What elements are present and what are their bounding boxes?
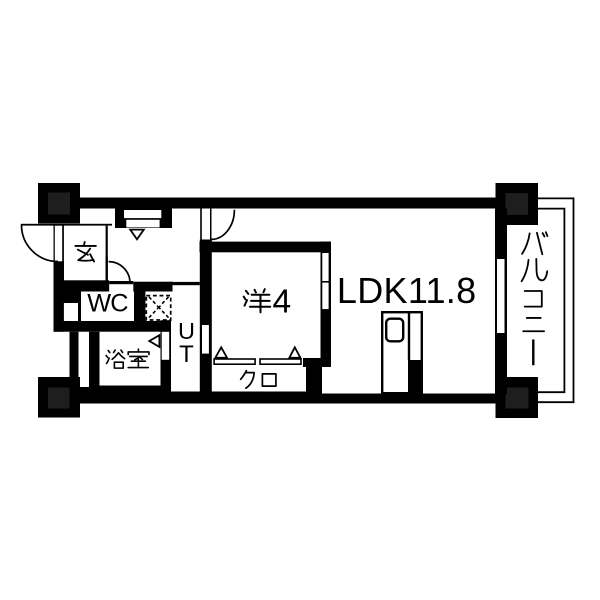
svg-text:LDK11.8: LDK11.8: [337, 270, 477, 311]
svg-text:4: 4: [272, 284, 291, 321]
svg-text:WC: WC: [87, 290, 128, 318]
svg-text:T: T: [179, 341, 194, 368]
